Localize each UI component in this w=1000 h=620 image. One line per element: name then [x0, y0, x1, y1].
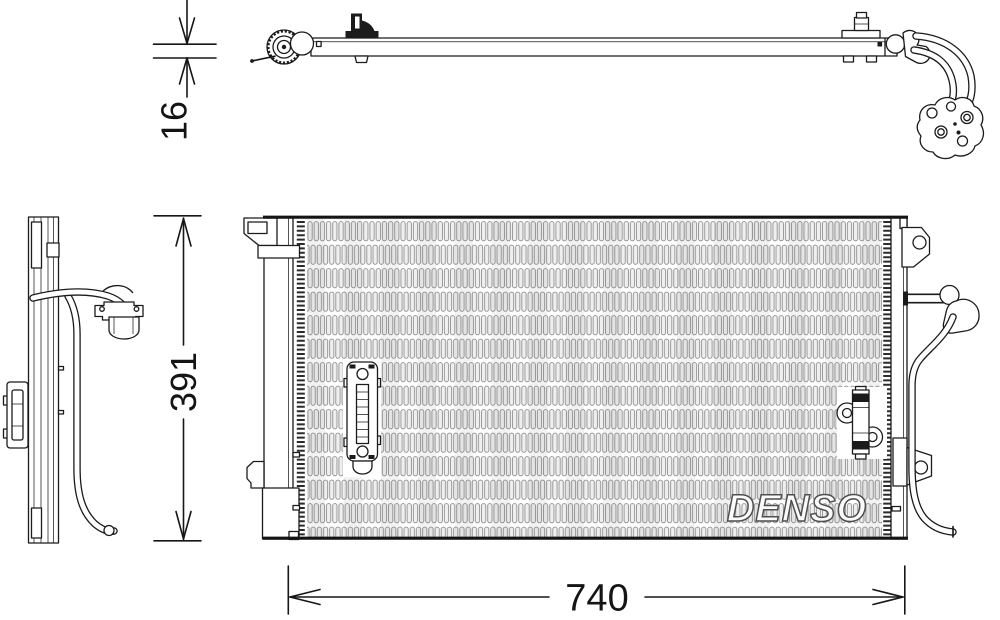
cap-rod-tip — [250, 59, 254, 63]
pipe-bend-arc — [103, 286, 133, 293]
bracket-slot — [355, 17, 360, 29]
profile-band — [47, 243, 59, 257]
bar-port-square — [317, 42, 322, 47]
drawing-canvas: DENSO — [0, 0, 1000, 620]
lower-bracket-base — [893, 438, 907, 486]
bracket-body — [7, 382, 28, 448]
pipe-end-cap — [104, 526, 114, 536]
profile-tick — [59, 411, 64, 415]
strap-band — [853, 441, 870, 450]
tank-clamp-band — [258, 246, 300, 259]
denso-watermark: DENSO — [727, 488, 867, 530]
dimension-height-391: 391 — [154, 216, 204, 541]
top-view — [250, 13, 983, 159]
tank-tick — [293, 506, 300, 511]
left-tank — [244, 218, 300, 540]
flange-dot — [953, 122, 957, 126]
profile-bottom-slot — [32, 508, 42, 538]
cap-port — [291, 32, 314, 55]
bracket-foot — [867, 56, 877, 62]
connector-cylinder — [109, 317, 139, 339]
bracket-bottom-tab — [353, 461, 372, 474]
flange-body — [917, 98, 983, 159]
sight-glass-bracket — [343, 359, 381, 477]
strap-bottom-tab — [856, 454, 867, 459]
side-view — [4, 217, 144, 543]
stub-flange — [903, 292, 908, 306]
strap-band — [853, 394, 870, 403]
tank-tick — [892, 507, 901, 512]
bracket-corner-mark — [350, 455, 356, 459]
bracket-corner-mark — [369, 365, 375, 369]
dimension-width-740: 740 — [288, 566, 905, 620]
bracket-slot — [248, 222, 267, 234]
bracket-plate — [842, 31, 880, 39]
tank-tick — [293, 453, 300, 458]
bracket-stem — [351, 14, 375, 33]
profile-top-slot — [32, 222, 42, 268]
dim-width-label: 740 — [565, 578, 628, 620]
under-bar-tab — [355, 56, 368, 63]
top-mount-bracket-left — [346, 14, 379, 38]
front-view: DENSO — [244, 217, 979, 539]
bracket-foot — [844, 56, 854, 62]
bar-port-square-right — [878, 42, 883, 47]
dim-depth-label: 16 — [154, 101, 195, 141]
connector-flange-top-view — [917, 98, 983, 159]
bracket-corner-mark — [369, 455, 375, 459]
condenser-technical-drawing: DENSO — [0, 0, 1000, 620]
side-mount-bracket — [4, 382, 29, 448]
pressure-cap — [250, 30, 313, 64]
dim-height-label: 391 — [163, 352, 204, 412]
profile-tick — [59, 367, 64, 371]
pipe-inner — [68, 296, 114, 531]
cap-center — [282, 45, 286, 49]
flange-dot — [957, 131, 961, 135]
right-strap-bracket — [837, 387, 887, 460]
bolt-cap — [857, 13, 867, 19]
tank-hook-bracket — [247, 462, 264, 489]
bar-end-port — [886, 35, 904, 53]
top-view-header-bar — [311, 38, 897, 56]
dimension-depth-16: 16 — [154, 0, 217, 141]
bracket-corner-mark — [350, 365, 356, 369]
front-view-pipes — [903, 286, 979, 538]
connector-block-side-view — [95, 302, 143, 339]
